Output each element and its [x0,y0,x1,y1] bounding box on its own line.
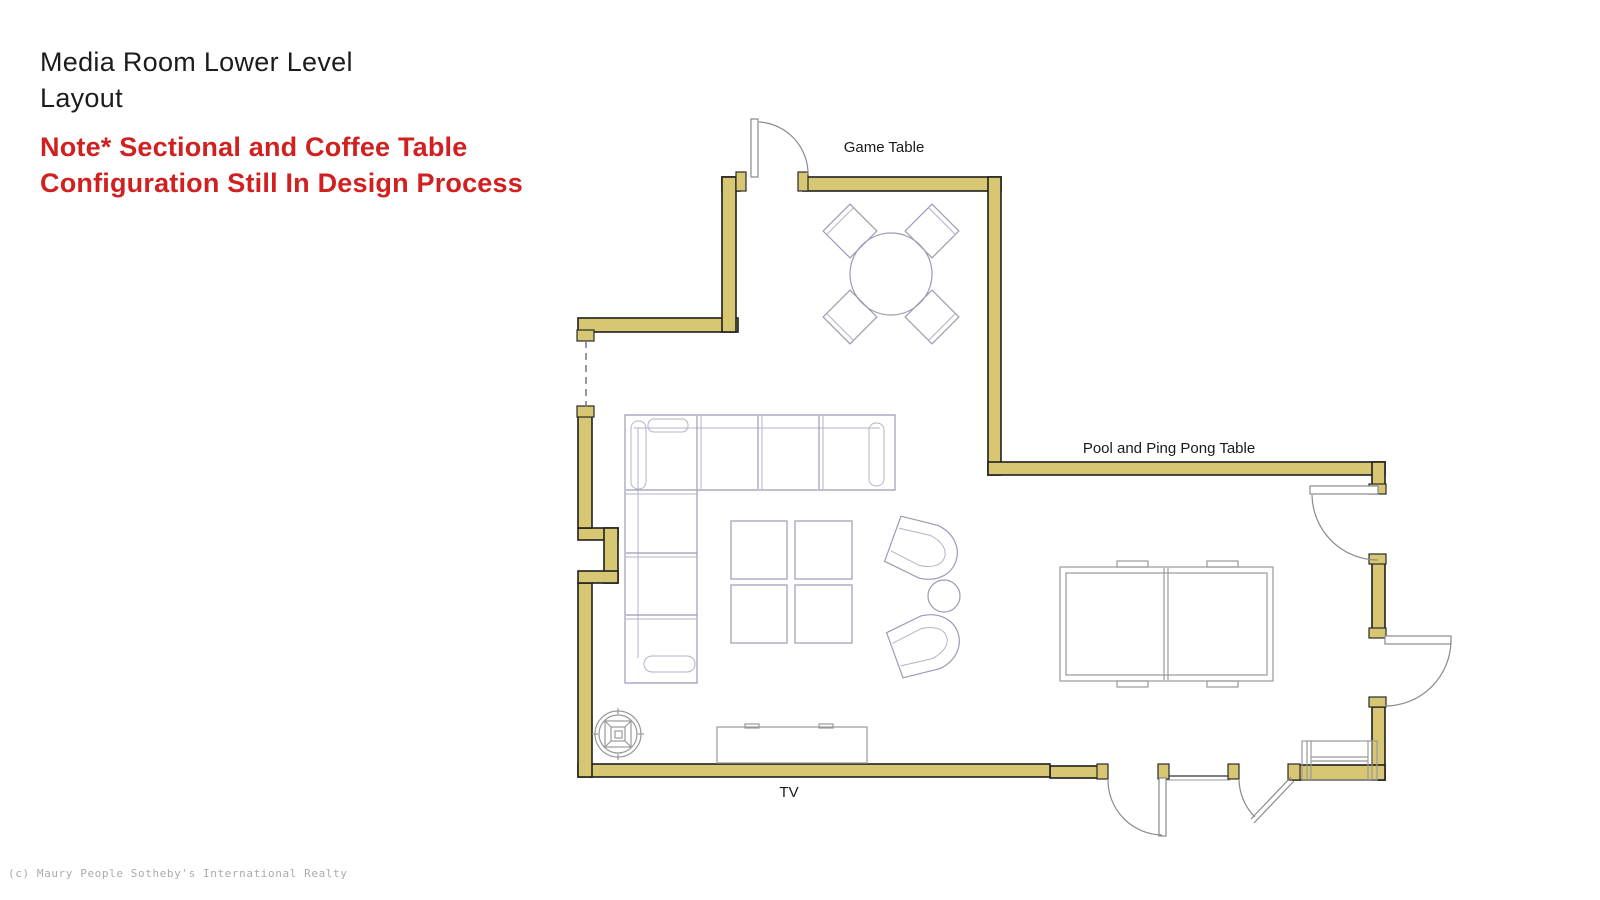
door-bottom-right-icon [1239,777,1294,823]
pool-ping-pong-label: Pool and Ping Pong Table [1083,440,1255,457]
floor-plan-page: Media Room Lower Level Layout Note* Sect… [0,0,1600,900]
door-right-upper-icon [1310,486,1378,560]
game-chair-ne [905,204,959,258]
floor-plan-drawing: Game Table Pool and Ping Pong Table TV [0,0,1600,900]
tub-chairs [883,512,967,681]
tv-cabinet [717,724,867,763]
game-chair-sw [823,290,877,344]
side-table [928,580,960,612]
door-right-lower-icon [1385,636,1451,706]
game-table-label: Game Table [844,139,925,156]
tub-chair-bottom [885,606,967,682]
game-chair-nw [823,204,877,258]
door-jambs [577,172,1386,780]
pool-ping-pong-table [1060,561,1273,687]
tv-label: TV [779,784,798,801]
game-table [823,204,959,344]
door-top-icon [751,119,808,177]
door-bottom-left-icon [1108,778,1166,836]
doors [751,119,1451,836]
tub-chair-top [883,512,965,588]
copyright-text: (c) Maury People Sotheby's International… [8,867,347,880]
coffee-table [731,521,852,643]
column-detail [592,708,644,760]
game-chair-se [905,290,959,344]
walls [578,177,1385,780]
